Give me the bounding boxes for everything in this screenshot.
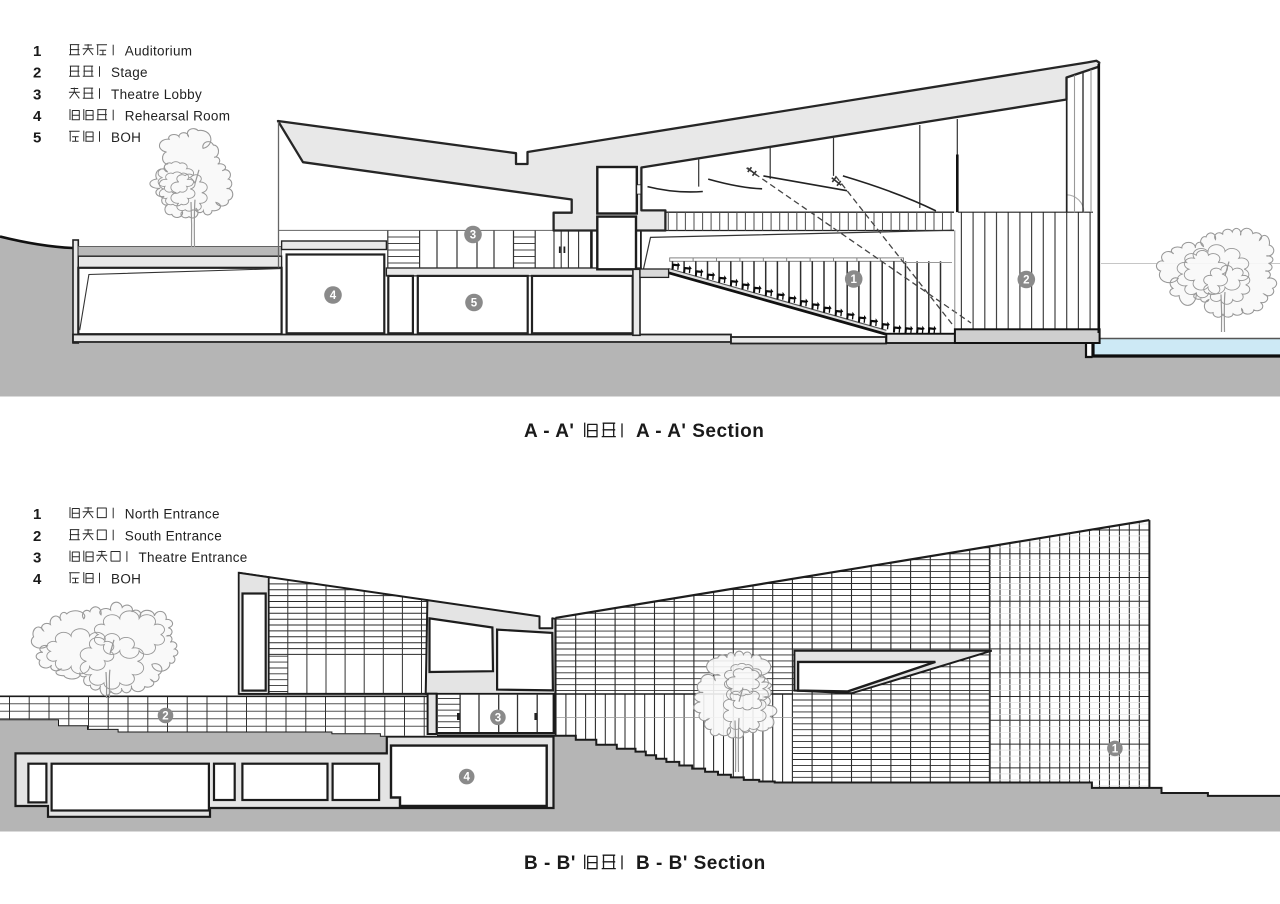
svg-text:Stage: Stage [111, 65, 148, 80]
svg-text:3: 3 [495, 712, 501, 724]
svg-text:A - A' Section: A - A' Section [636, 421, 764, 442]
svg-text:1: 1 [33, 506, 42, 523]
svg-text:B - B' Section: B - B' Section [636, 853, 766, 874]
svg-text:3: 3 [470, 230, 476, 242]
svg-text:B - B': B - B' [524, 853, 576, 874]
svg-text:2: 2 [33, 65, 42, 82]
svg-text:2: 2 [162, 711, 168, 723]
svg-text:3: 3 [33, 550, 42, 567]
svg-text:BOH: BOH [111, 572, 141, 587]
svg-text:1: 1 [1112, 744, 1119, 756]
svg-text:2: 2 [1023, 275, 1029, 287]
svg-text:Rehearsal Room: Rehearsal Room [125, 109, 231, 124]
svg-text:North Entrance: North Entrance [125, 507, 220, 522]
svg-text:5: 5 [33, 130, 42, 147]
svg-text:1: 1 [850, 274, 857, 286]
svg-text:1: 1 [33, 43, 42, 60]
svg-text:Auditorium: Auditorium [125, 44, 193, 59]
svg-text:4: 4 [330, 290, 337, 302]
svg-text:A - A': A - A' [524, 421, 574, 442]
svg-text:BOH: BOH [111, 130, 141, 145]
svg-text:4: 4 [463, 772, 470, 784]
svg-text:Theatre Lobby: Theatre Lobby [111, 87, 202, 102]
svg-text:3: 3 [33, 87, 42, 104]
svg-text:2: 2 [33, 528, 42, 545]
svg-text:Theatre Entrance: Theatre Entrance [139, 550, 248, 565]
svg-text:South Entrance: South Entrance [125, 529, 222, 544]
svg-text:4: 4 [33, 108, 42, 125]
svg-text:5: 5 [471, 298, 478, 310]
svg-text:4: 4 [33, 571, 42, 588]
